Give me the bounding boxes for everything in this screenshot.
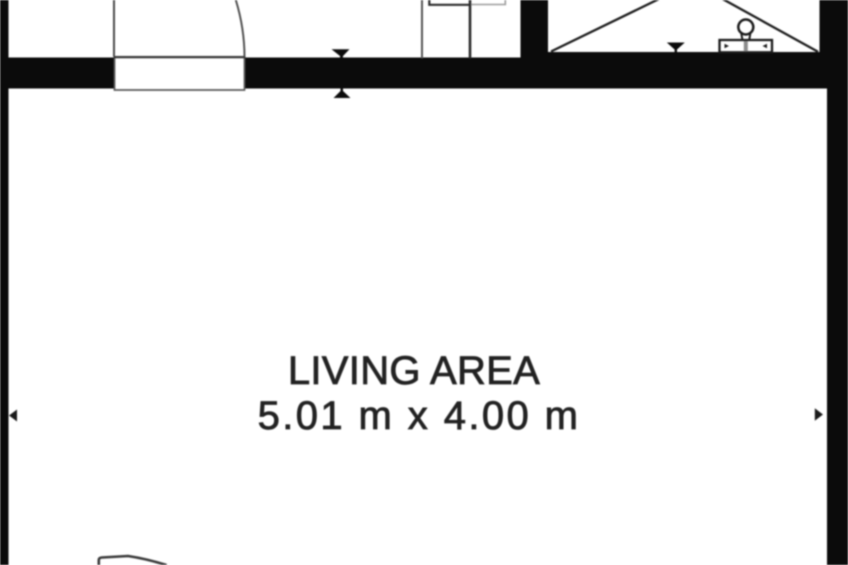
svg-text:5.01 m x 4.00 m: 5.01 m x 4.00 m	[258, 394, 581, 438]
svg-text:LIVING AREA: LIVING AREA	[288, 349, 540, 393]
